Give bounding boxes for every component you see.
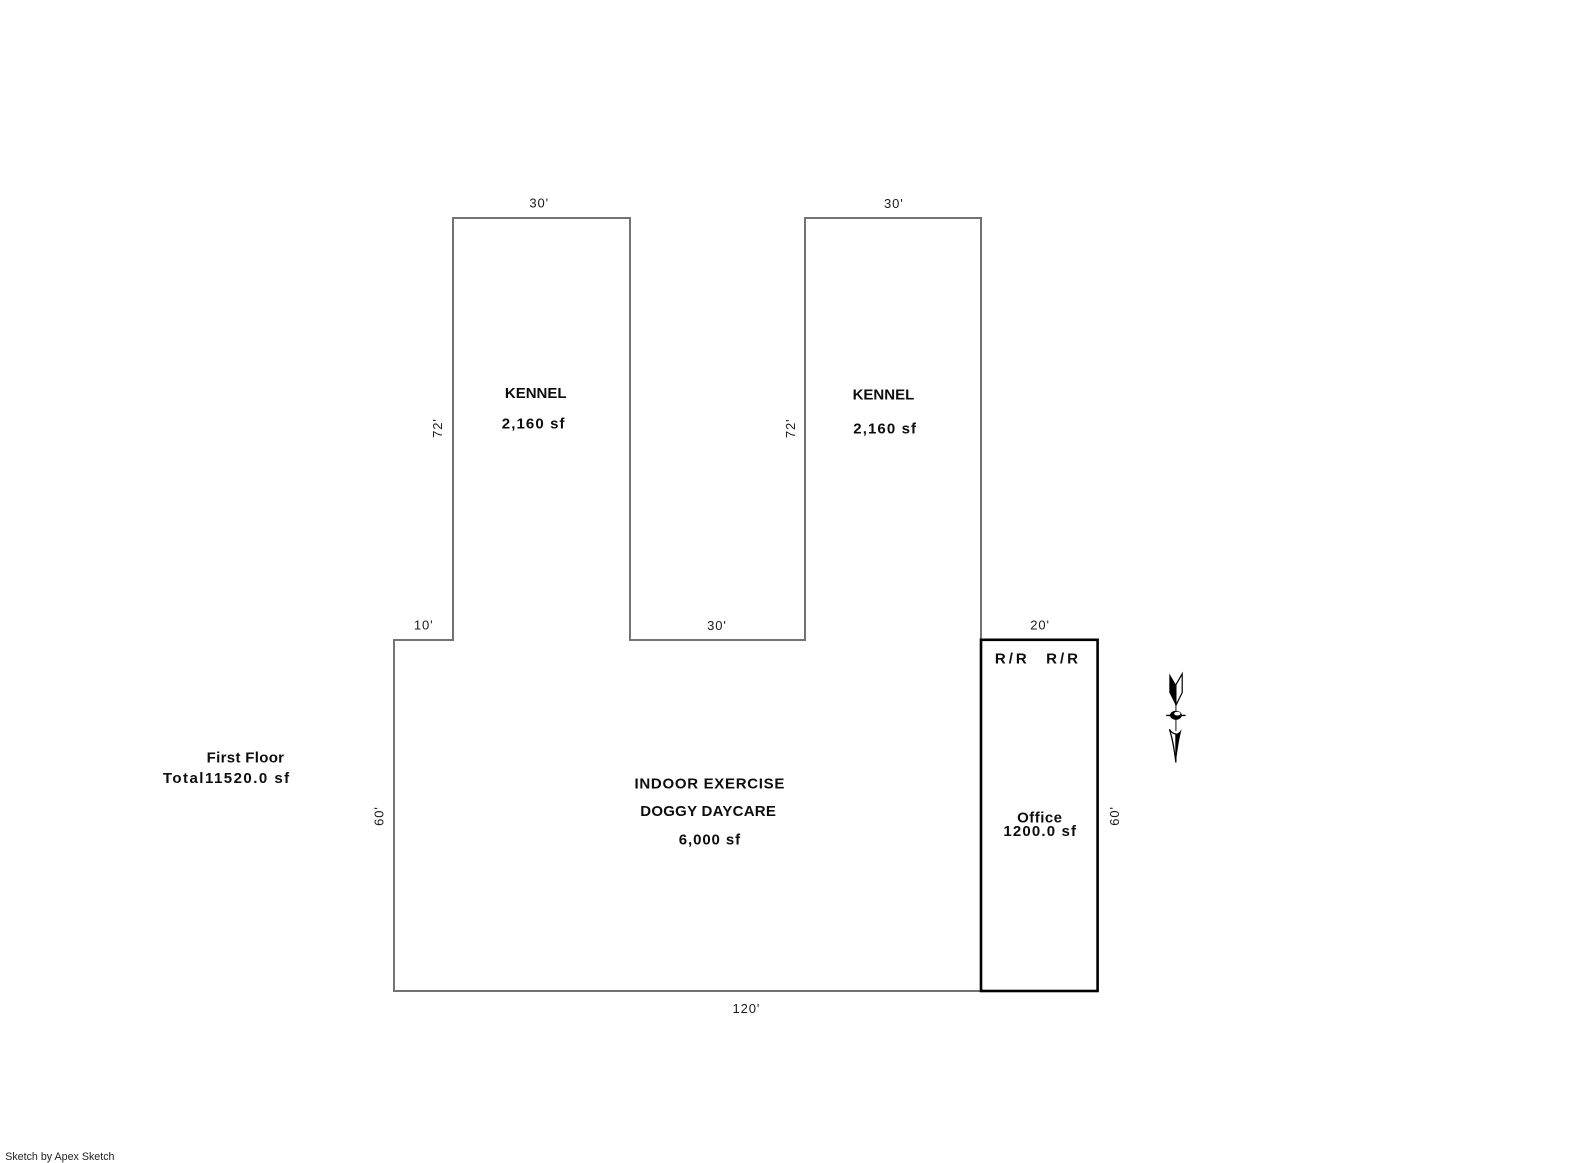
svg-text:60': 60': [1107, 806, 1122, 826]
svg-text:72': 72': [430, 418, 445, 438]
svg-text:KENNEL: KENNEL: [505, 385, 567, 402]
svg-text:Total11520.0 sf: Total11520.0 sf: [163, 770, 291, 787]
svg-text:10': 10': [414, 617, 434, 632]
svg-text:Sketch by Apex Sketch: Sketch by Apex Sketch: [5, 1151, 114, 1163]
svg-text:KENNEL: KENNEL: [853, 386, 915, 403]
svg-text:R/R: R/R: [995, 650, 1030, 667]
svg-text:R/R: R/R: [1046, 650, 1081, 667]
svg-text:30': 30': [707, 618, 727, 633]
svg-text:72': 72': [783, 418, 798, 438]
svg-text:INDOOR EXERCISE: INDOOR EXERCISE: [635, 775, 786, 792]
svg-text:First Floor: First Floor: [207, 749, 285, 766]
svg-text:2,160 sf: 2,160 sf: [853, 421, 917, 438]
svg-text:2,160 sf: 2,160 sf: [502, 416, 566, 433]
svg-text:30': 30': [884, 196, 904, 211]
svg-text:20': 20': [1030, 618, 1050, 633]
svg-text:60': 60': [372, 806, 387, 826]
svg-text:120': 120': [733, 1001, 761, 1016]
svg-text:30': 30': [529, 196, 549, 211]
svg-text:DOGGY DAYCARE: DOGGY DAYCARE: [640, 803, 776, 820]
svg-text:6,000 sf: 6,000 sf: [679, 832, 741, 849]
svg-text:1200.0 sf: 1200.0 sf: [1003, 823, 1077, 840]
